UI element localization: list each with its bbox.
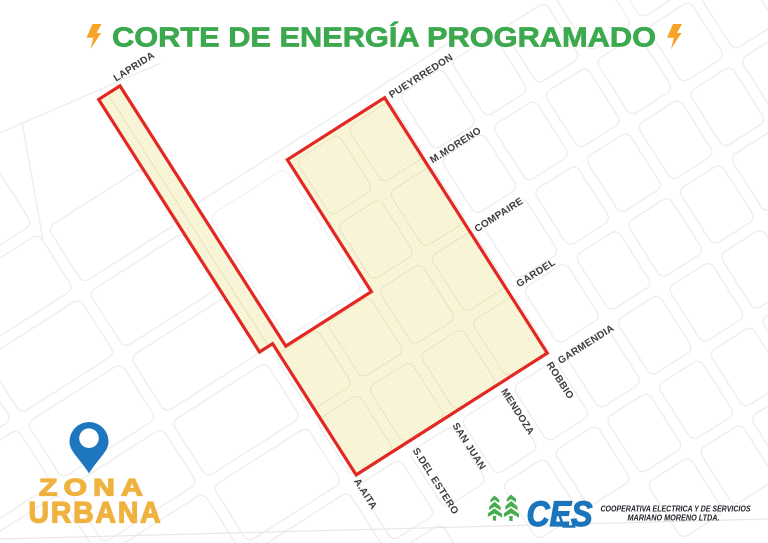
svg-text:CORTE DE ENERGÍA PROGRAMADO: CORTE DE ENERGÍA PROGRAMADO: [112, 22, 656, 53]
svg-text:COOPERATIVA ELECTRICA Y DE SER: COOPERATIVA ELECTRICA Y DE SERVICIOS: [601, 505, 752, 514]
svg-text:MARIANO MORENO LTDA.: MARIANO MORENO LTDA.: [628, 514, 720, 523]
svg-text:URBANA: URBANA: [29, 497, 163, 530]
